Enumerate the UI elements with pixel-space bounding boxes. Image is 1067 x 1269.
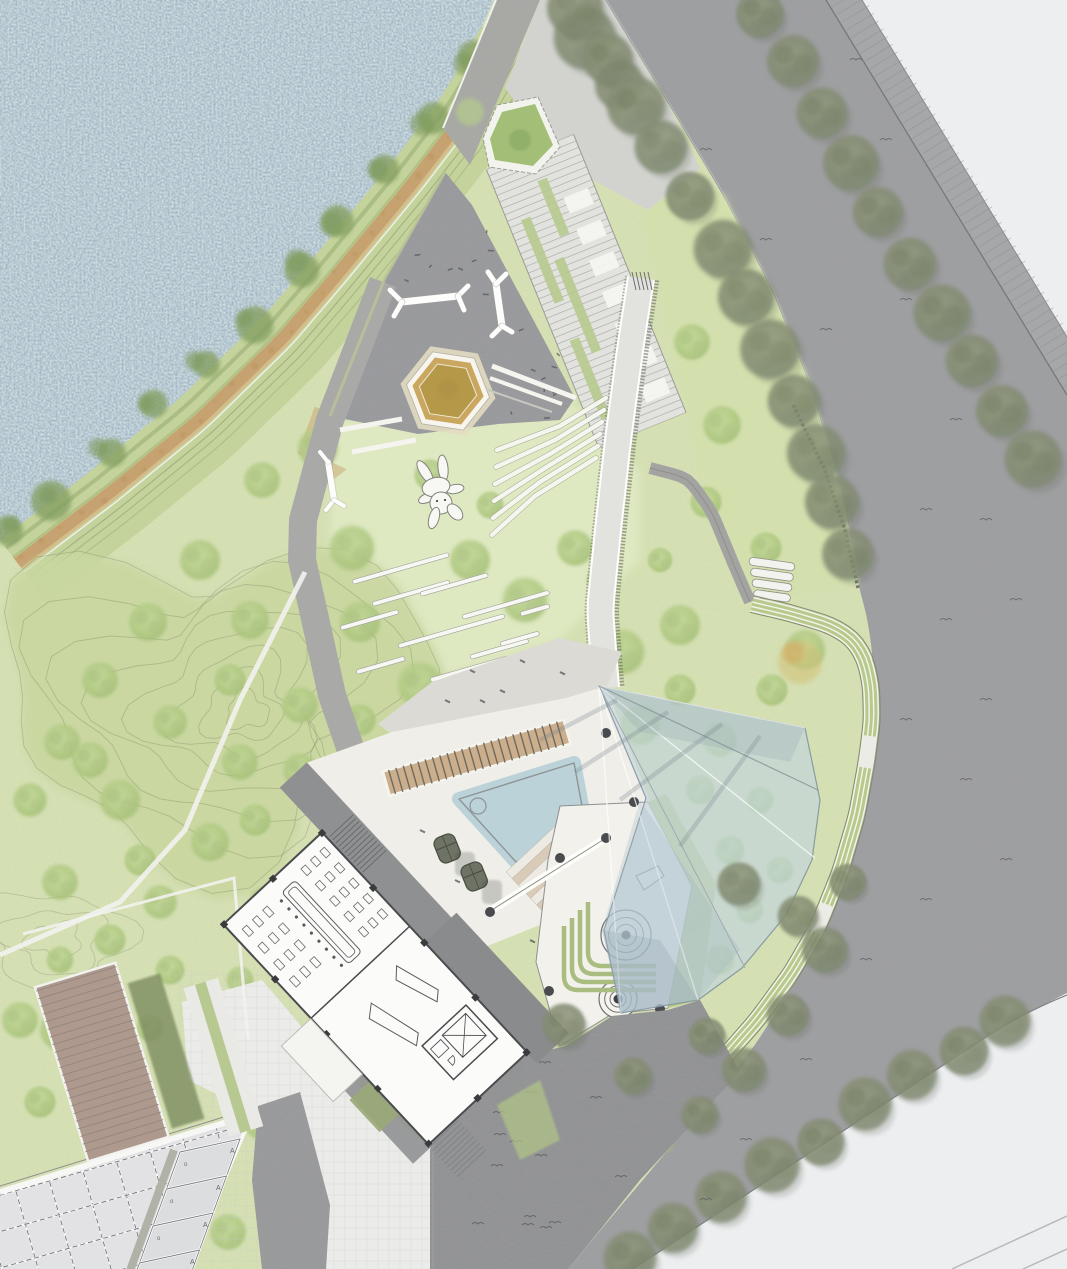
- svg-text:A: A: [216, 1185, 221, 1192]
- svg-text:A: A: [203, 1222, 208, 1229]
- svg-text:A: A: [230, 1148, 235, 1155]
- svg-text:A: A: [190, 1259, 195, 1266]
